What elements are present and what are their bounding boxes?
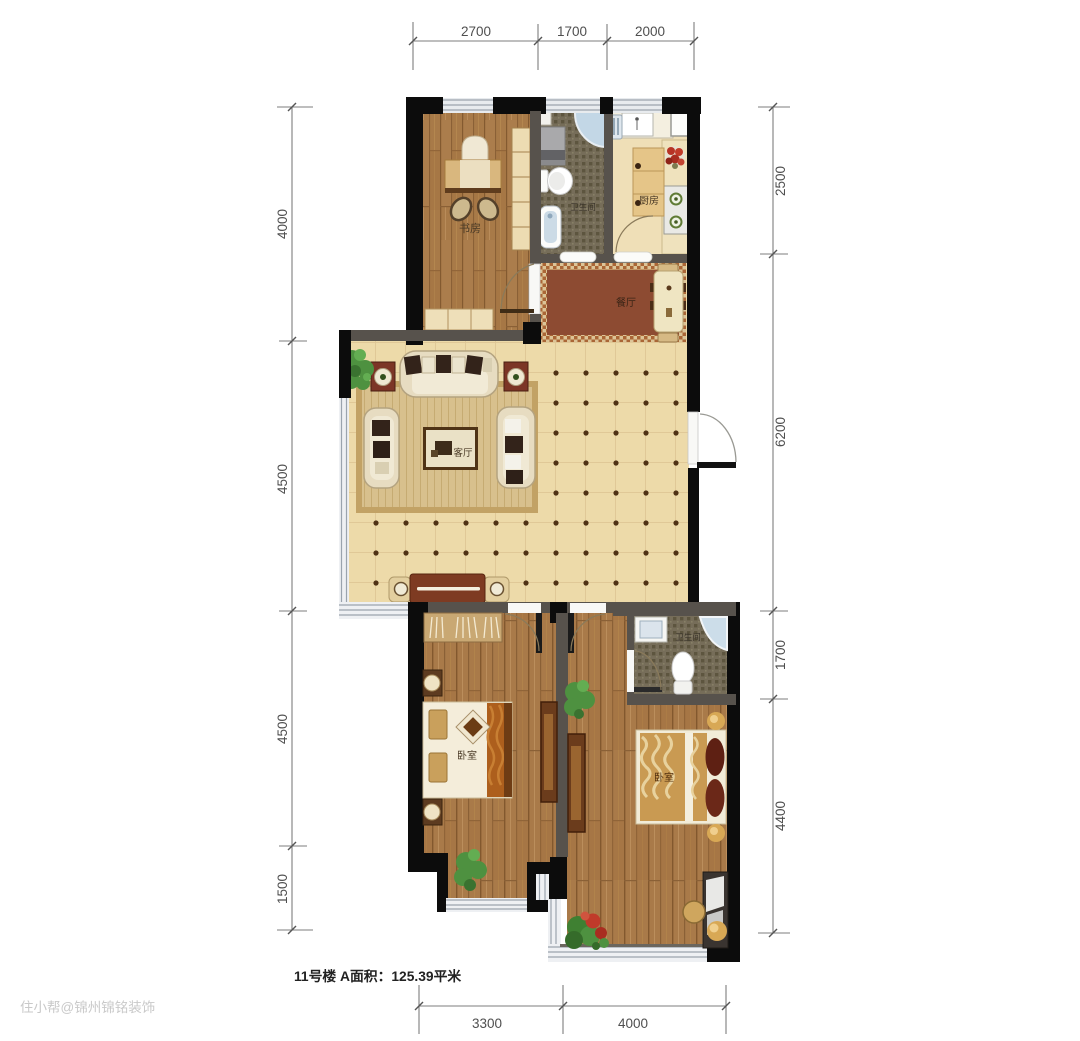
svg-text:卧室: 卧室 bbox=[457, 749, 477, 762]
svg-text:住小帮@锦州锦铭装饰: 住小帮@锦州锦铭装饰 bbox=[20, 1000, 155, 1015]
svg-text:卫生间: 卫生间 bbox=[570, 202, 596, 212]
svg-text:4000: 4000 bbox=[275, 209, 290, 239]
svg-text:卫生间: 卫生间 bbox=[675, 632, 701, 642]
svg-text:4500: 4500 bbox=[275, 464, 290, 494]
svg-text:11号楼 A面积：125.39平米: 11号楼 A面积：125.39平米 bbox=[294, 968, 461, 984]
svg-text:书房: 书房 bbox=[459, 222, 481, 235]
svg-text:4000: 4000 bbox=[618, 1016, 648, 1031]
svg-text:1500: 1500 bbox=[275, 874, 290, 904]
svg-text:2000: 2000 bbox=[635, 24, 665, 39]
svg-text:卧室: 卧室 bbox=[654, 771, 674, 784]
svg-text:2500: 2500 bbox=[773, 166, 788, 196]
svg-text:2700: 2700 bbox=[461, 24, 491, 39]
svg-text:4400: 4400 bbox=[773, 801, 788, 831]
svg-text:4500: 4500 bbox=[275, 714, 290, 744]
svg-text:1700: 1700 bbox=[773, 640, 788, 670]
svg-text:3300: 3300 bbox=[472, 1016, 502, 1031]
svg-text:厨房: 厨房 bbox=[639, 194, 659, 207]
svg-text:6200: 6200 bbox=[773, 417, 788, 447]
svg-text:餐厅: 餐厅 bbox=[616, 296, 636, 309]
svg-text:客厅: 客厅 bbox=[453, 447, 473, 459]
svg-text:1700: 1700 bbox=[557, 24, 587, 39]
